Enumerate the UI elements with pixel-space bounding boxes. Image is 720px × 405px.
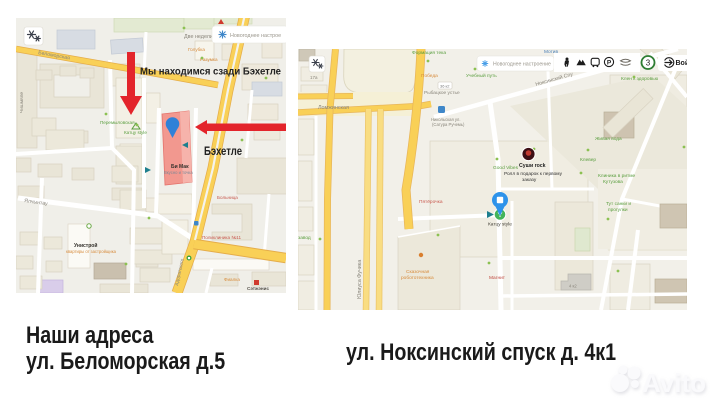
svg-text:Катцу style: Катцу style — [488, 222, 512, 228]
svg-text:Бэхетле: Бэхетле — [204, 144, 242, 158]
svg-text:Две недели: Две недели — [184, 34, 213, 40]
svg-text:Живая вода: Живая вода — [595, 136, 622, 142]
svg-text:Ролл в подарок к первому: Ролл в подарок к первому — [504, 171, 563, 177]
svg-text:Рыбацкое устье: Рыбацкое устье — [424, 90, 460, 96]
svg-text:Суши rock: Суши rock — [519, 163, 546, 169]
svg-text:квартиры от застройщика: квартиры от застройщика — [66, 249, 117, 254]
svg-text:Магнит: Магнит — [489, 275, 506, 281]
svg-text:Кутузова: Кутузова — [603, 179, 623, 185]
svg-text:Клен к здоровью: Клен к здоровью — [621, 76, 659, 82]
svg-text:Новогоднее настрое: Новогоднее настрое — [230, 33, 281, 39]
svg-text:Вкусно и точка: Вкусно и точка — [164, 170, 193, 175]
svg-text:(Сатура Ручемь): (Сатура Ручемь) — [432, 122, 465, 127]
svg-text:Клиника в ритме: Клиника в ритме — [598, 173, 636, 179]
svg-text:Новогоднее настроение: Новогоднее настроение — [493, 62, 551, 68]
svg-text:Сказочная: Сказочная — [406, 269, 430, 275]
svg-text:Ломжинская: Ломжинская — [318, 105, 349, 111]
svg-text:Перемыловская: Перемыловская — [100, 120, 135, 125]
svg-text:Унистрой: Унистрой — [74, 242, 97, 249]
svg-text:робототехника: робототехника — [401, 275, 434, 281]
svg-text:3: 3 — [646, 59, 651, 68]
svg-text:Вой: Вой — [676, 59, 688, 67]
svg-text:Учебный путь: Учебный путь — [466, 72, 497, 79]
svg-text:Больница: Больница — [217, 195, 238, 200]
svg-text:прогулки: прогулки — [608, 208, 628, 213]
svg-text:Сэтжэнис: Сэтжэнис — [247, 286, 269, 291]
svg-text:Юлиуса Фучика: Юлиуса Фучика — [357, 260, 363, 299]
svg-text:завод: завод — [298, 236, 311, 241]
svg-text:Клевер: Клевер — [580, 157, 596, 163]
svg-text:36 к2: 36 к2 — [440, 84, 450, 89]
svg-text:Good Vibes: Good Vibes — [493, 165, 519, 171]
svg-text:Фиалка: Фиалка — [224, 277, 240, 282]
svg-text:Мы находимся сзади Бэхетле: Мы находимся сзади Бэхетле — [140, 66, 281, 78]
svg-text:Голубка: Голубка — [188, 47, 205, 52]
svg-text:17а: 17а — [310, 75, 318, 80]
svg-text:Формация тека: Формация тека — [412, 50, 446, 56]
svg-text:Катцу style: Катцу style — [124, 130, 147, 135]
svg-text:4 к2: 4 к2 — [569, 284, 577, 289]
svg-text:Чишмяле: Чишмяле — [19, 92, 25, 113]
svg-text:Поликлиника №11: Поликлиника №11 — [202, 235, 241, 240]
svg-text:Avito: Avito — [642, 368, 706, 398]
svg-text:заказу: заказу — [522, 178, 537, 183]
svg-text:Тут санки и: Тут санки и — [606, 201, 631, 207]
svg-text:Пятёрочка: Пятёрочка — [419, 199, 443, 205]
svg-text:P: P — [607, 59, 612, 66]
svg-text:Победа: Победа — [421, 73, 438, 79]
